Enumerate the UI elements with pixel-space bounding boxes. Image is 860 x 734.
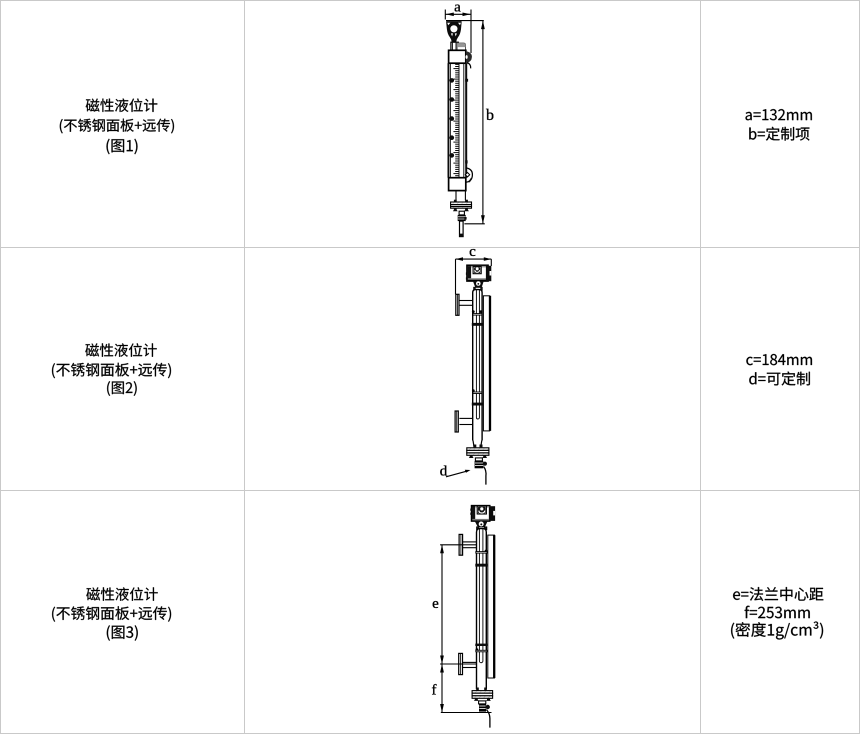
svg-text:c: c (469, 244, 476, 260)
svg-text:a: a (454, 0, 461, 16)
svg-text:f: f (432, 683, 437, 699)
svg-text:e: e (432, 596, 439, 612)
svg-text:b: b (486, 107, 494, 124)
